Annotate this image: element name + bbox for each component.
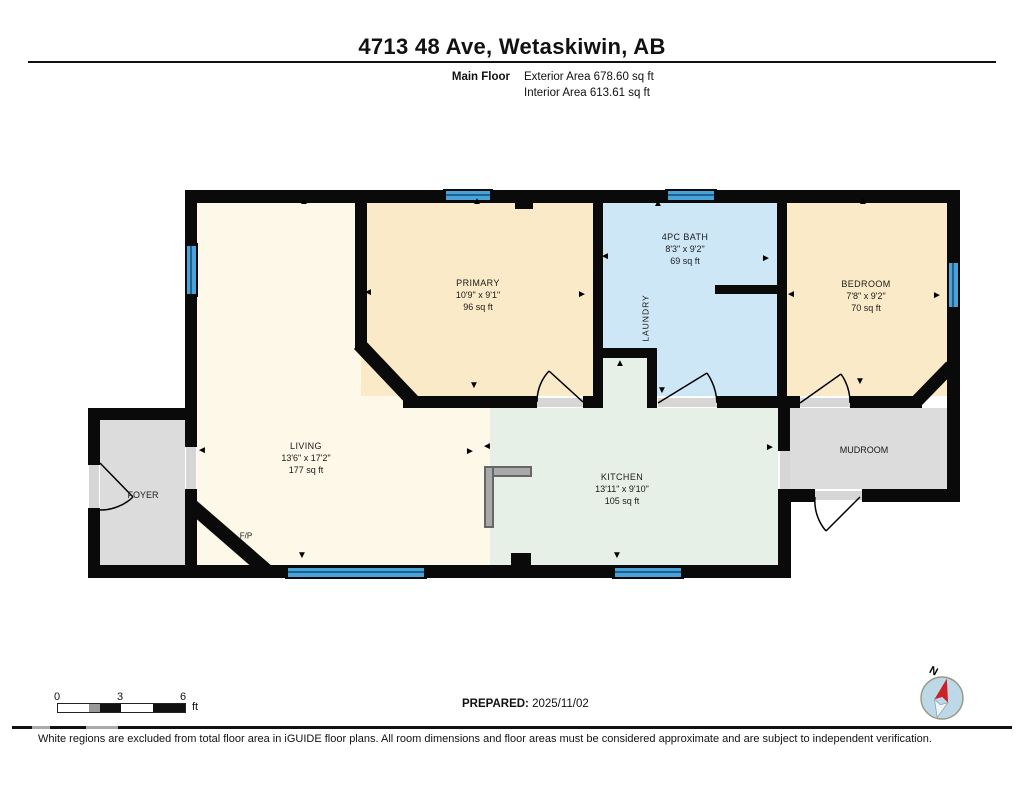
footer-divider-segment [32, 726, 50, 729]
door-threshold-bath [658, 398, 717, 407]
scale-tick: 6 [180, 691, 186, 703]
dimension-arrow-icon: ► [577, 290, 587, 300]
dimension-arrow-icon: ▼ [469, 381, 479, 391]
scale-unit: ft [192, 701, 198, 713]
room-bath [603, 203, 777, 348]
room-dims: 13'11" x 9'10" [595, 483, 649, 495]
room-dims: 8'3" x 9'2" [662, 243, 709, 255]
foyer-label: FOYER [127, 489, 158, 501]
room-dims: 10'9" x 9'1" [456, 289, 500, 301]
bedroom-label: BEDROOM 7'8" x 9'2" 70 sq ft [841, 278, 890, 314]
door-threshold-primary [537, 398, 583, 407]
room-area: 96 sq ft [456, 301, 500, 313]
dimension-arrow-icon: ▼ [855, 377, 865, 387]
dimension-arrow-icon: ▲ [653, 199, 663, 209]
dimension-arrow-icon: ► [765, 443, 775, 453]
room-dims: 7'8" x 9'2" [841, 290, 890, 302]
dimension-arrow-icon: ► [932, 291, 942, 301]
fireplace-label: F/P [240, 532, 252, 543]
opening-kitchen-mudroom [780, 449, 790, 489]
wall [88, 408, 197, 420]
window [185, 243, 198, 297]
room-area: 177 sq ft [281, 464, 330, 476]
primary-label: PRIMARY 10'9" x 9'1" 96 sq ft [456, 277, 500, 313]
footer-divider-segment [86, 726, 118, 729]
window [947, 260, 960, 310]
room-area: 69 sq ft [662, 255, 709, 267]
dimension-arrow-icon: ◄ [600, 252, 610, 262]
room-dims: 13'6" x 17'2" [281, 452, 330, 464]
wall [778, 396, 790, 451]
opening-living-foyer [186, 447, 196, 489]
wall [715, 285, 778, 294]
wall [88, 508, 100, 578]
wall [862, 489, 960, 502]
prepared-value: 2025/11/02 [532, 698, 589, 710]
kitchen-counter [484, 466, 494, 528]
room-name: 4PC BATH [662, 231, 709, 243]
laundry-label: LAUNDRY [640, 294, 651, 341]
mudroom-label: MUDROOM [840, 444, 889, 456]
room-laundry [657, 348, 777, 396]
room-name: LIVING [281, 440, 330, 452]
window [612, 566, 684, 579]
wall [355, 190, 367, 348]
kitchen-nook [603, 358, 647, 408]
dimension-arrow-icon: ▲ [299, 197, 309, 207]
dimension-arrow-icon: ▼ [297, 551, 307, 561]
dimension-arrow-icon: ◄ [197, 446, 207, 456]
wall [593, 190, 603, 408]
door-threshold-mudroom [815, 491, 862, 500]
wall [850, 396, 922, 408]
dimension-arrow-icon: ▲ [858, 197, 868, 207]
prepared-date: PREPARED: 2025/11/02 [462, 698, 589, 710]
dimension-arrow-icon: ▲ [472, 197, 482, 207]
wall [515, 203, 533, 209]
scale-bar-ruler [57, 703, 186, 713]
dimension-arrow-icon: ► [761, 254, 771, 264]
prepared-label: PREPARED: [462, 698, 529, 710]
dimension-arrow-icon: ◄ [482, 442, 492, 452]
window [285, 566, 427, 579]
window [665, 189, 717, 202]
room-name: KITCHEN [595, 471, 649, 483]
room-name: PRIMARY [456, 277, 500, 289]
wall [185, 489, 197, 578]
scale-tick: 0 [54, 691, 60, 703]
dimension-arrow-icon: ▼ [612, 551, 622, 561]
bath-label: 4PC BATH 8'3" x 9'2" 69 sq ft [662, 231, 709, 267]
dimension-arrow-icon: ◄ [786, 290, 796, 300]
dimension-arrow-icon: ▲ [615, 359, 625, 369]
footer-divider [12, 726, 1012, 729]
door-threshold-bedroom [800, 398, 850, 407]
wall [947, 190, 960, 502]
scale-tick: 3 [117, 691, 123, 703]
window [443, 189, 493, 202]
dimension-arrow-icon: ▼ [657, 386, 667, 396]
dimension-arrow-icon: ► [465, 447, 475, 457]
living-label: LIVING 13'6" x 17'2" 177 sq ft [281, 440, 330, 476]
door-threshold-foyer [89, 463, 99, 510]
door-swing-mudroom [815, 497, 860, 531]
wall [185, 190, 197, 447]
room-name: BEDROOM [841, 278, 890, 290]
disclaimer-text: White regions are excluded from total fl… [38, 733, 932, 745]
floor-plan: ▲ ◄ ► ▼ ▲ ◄ ► ▼ ▲ ◄ ► ▼ ▲ ◄ ► ▼ ▲ ◄ ► ▼ … [0, 0, 1024, 791]
wall [403, 396, 537, 408]
wall [647, 348, 657, 408]
kitchen-label: KITCHEN 13'11" x 9'10" 105 sq ft [595, 471, 649, 507]
wall [511, 553, 531, 565]
scale-bar: 0 3 6 ft [57, 691, 217, 715]
dimension-arrow-icon: ◄ [363, 288, 373, 298]
room-area: 70 sq ft [841, 302, 890, 314]
room-area: 105 sq ft [595, 495, 649, 507]
floor-plan-page: 4713 48 Ave, Wetaskiwin, AB Main Floor E… [0, 0, 1024, 791]
